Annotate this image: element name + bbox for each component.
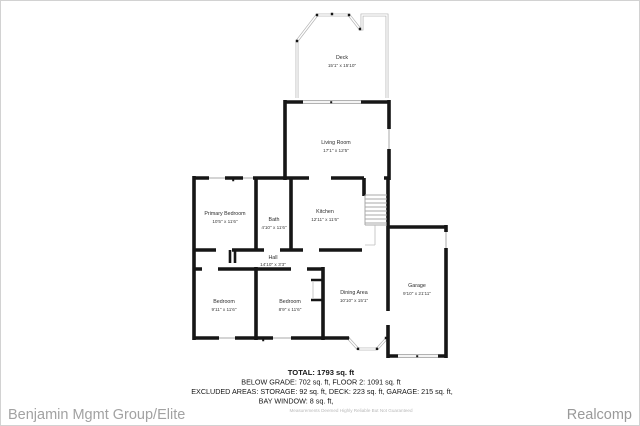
- room-dims-bedroom-2: 8'9" x 11'6": [279, 307, 302, 312]
- room-name-bath: Bath: [269, 217, 280, 223]
- footer-provider-logo: Realcomp: [567, 408, 632, 423]
- room-name-bedroom-2: Bedroom: [279, 299, 301, 305]
- room-dims-primary-bedroom: 10'5" x 11'6": [212, 219, 238, 224]
- room-name-deck: Deck: [336, 55, 348, 61]
- room-dims-dining-area: 10'10" x 15'1": [340, 298, 369, 303]
- room-dims-bath: 4'10" x 11'6": [261, 225, 287, 230]
- dimension-ticks: [232, 13, 418, 357]
- footer-company-name: Benjamin Mgmt Group/Elite: [8, 408, 185, 423]
- room-labels: Deck 15'1" x 15'10" Living Room 17'1" x …: [204, 55, 431, 312]
- room-dims-living-room: 17'1" x 12'5": [323, 148, 349, 153]
- room-name-bedroom-1: Bedroom: [213, 299, 235, 305]
- room-name-living-room: Living Room: [321, 140, 351, 146]
- summary-total: TOTAL: 1793 sq. ft: [288, 368, 355, 377]
- room-name-primary-bedroom: Primary Bedroom: [204, 211, 246, 217]
- room-name-kitchen: Kitchen: [316, 209, 334, 215]
- bay-window: [348, 338, 387, 349]
- footer-bar: Benjamin Mgmt Group/Elite Realcomp: [1, 403, 639, 425]
- room-dims-deck: 15'1" x 15'10": [328, 63, 357, 68]
- room-name-garage: Garage: [408, 283, 426, 289]
- walls: [194, 100, 446, 358]
- room-dims-kitchen: 12'11" x 11'6": [311, 217, 339, 222]
- room-name-dining-area: Dining Area: [340, 290, 367, 296]
- room-name-hall: Hall: [268, 255, 277, 261]
- room-dims-garage: 9'10" x 21'11": [403, 291, 431, 296]
- stairs: [365, 195, 387, 245]
- summary-excluded: EXCLUDED AREAS: STORAGE: 92 sq. ft, DECK…: [191, 387, 453, 396]
- summary-below-grade: BELOW GRADE: 702 sq. ft, FLOOR 2: 1091 s…: [241, 378, 400, 387]
- floor-plan-page: Deck 15'1" x 15'10" Living Room 17'1" x …: [0, 0, 640, 426]
- floor-plan-svg: Deck 15'1" x 15'10" Living Room 17'1" x …: [1, 1, 640, 426]
- room-dims-hall: 14'10" x 3'3": [260, 262, 286, 267]
- room-dims-bedroom-1: 9'11" x 11'6": [211, 307, 236, 312]
